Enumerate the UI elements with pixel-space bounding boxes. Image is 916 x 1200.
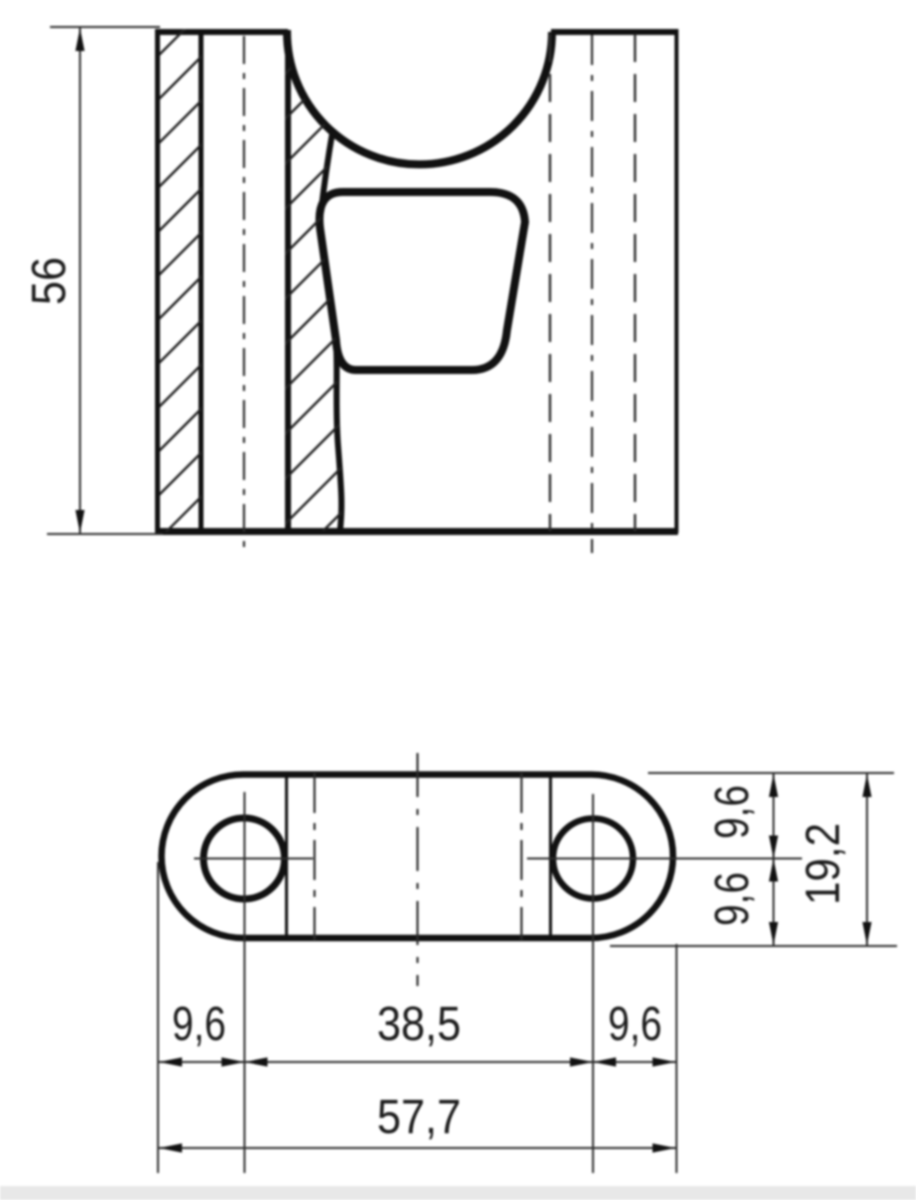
svg-text:9,6: 9,6 <box>706 785 759 839</box>
svg-text:9,6: 9,6 <box>706 872 759 926</box>
svg-text:57,7: 57,7 <box>377 1091 461 1144</box>
svg-text:19,2: 19,2 <box>797 823 850 905</box>
svg-text:9,6: 9,6 <box>172 998 226 1051</box>
svg-text:56: 56 <box>23 257 76 305</box>
svg-text:38,5: 38,5 <box>377 998 461 1051</box>
svg-text:9,6: 9,6 <box>608 998 662 1051</box>
